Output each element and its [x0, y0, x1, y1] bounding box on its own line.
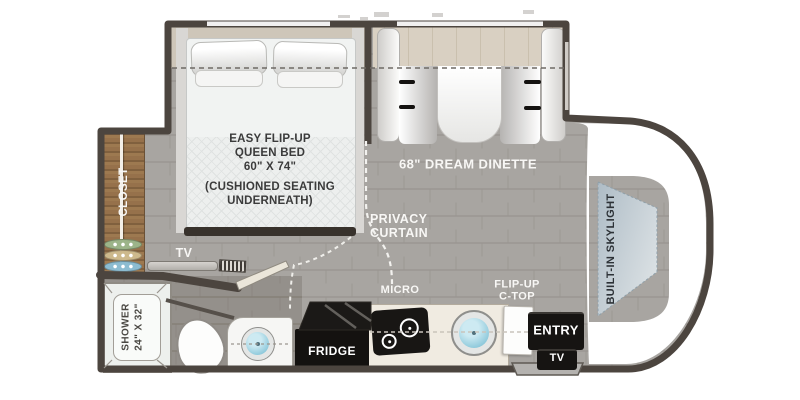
ctop-line1: FLIP-UP [494, 280, 540, 292]
rv-floorplan: EASY FLIP-UP QUEEN BED 60" X 74" (CUSHIO… [0, 0, 800, 400]
closet-label: CLOSET [118, 167, 130, 216]
dinette-label: 68" DREAM DINETTE [399, 157, 537, 172]
window-slit [565, 42, 569, 110]
bed-label-line5: UNDERNEATH) [205, 194, 335, 208]
bed-label-line2: QUEEN BED [205, 146, 335, 160]
bath-door [236, 261, 289, 290]
entry-label: ENTRY [533, 323, 579, 338]
shower-divider [166, 300, 234, 318]
ctop-label: FLIP-UP C-TOP [494, 280, 540, 303]
roof-marks [338, 10, 534, 20]
bed-label-line4: (CUSHIONED SEATING [205, 180, 335, 194]
shower-line2: 24" X 32" [133, 303, 146, 351]
bed-label: EASY FLIP-UP QUEEN BED 60" X 74" (CUSHIO… [205, 132, 335, 208]
fridge-label: FRIDGE [308, 344, 356, 358]
bedroom-tv-label: TV [176, 246, 193, 260]
bathroom-wall [100, 275, 238, 288]
fridge-top [299, 302, 371, 330]
ctop-line2: C-TOP [494, 291, 540, 303]
slide-line [207, 22, 330, 27]
shower-label: SHOWER 24" X 32" [121, 303, 146, 351]
bed-label-line1: EASY FLIP-UP [205, 132, 335, 146]
slide-line [397, 22, 543, 27]
privacy-line1: PRIVACY [370, 212, 428, 226]
privacy-curtain-label: PRIVACY CURTAIN [370, 212, 428, 240]
entry-tv-label: TV [550, 352, 565, 364]
micro-label: MICRO [381, 284, 420, 296]
privacy-line2: CURTAIN [370, 226, 428, 240]
skylight-label: BUILT-IN SKYLIGHT [605, 193, 617, 304]
shower-line1: SHOWER [121, 303, 134, 351]
bed-label-line3: 60" X 74" [205, 160, 335, 174]
door-swing-arc [290, 237, 351, 310]
